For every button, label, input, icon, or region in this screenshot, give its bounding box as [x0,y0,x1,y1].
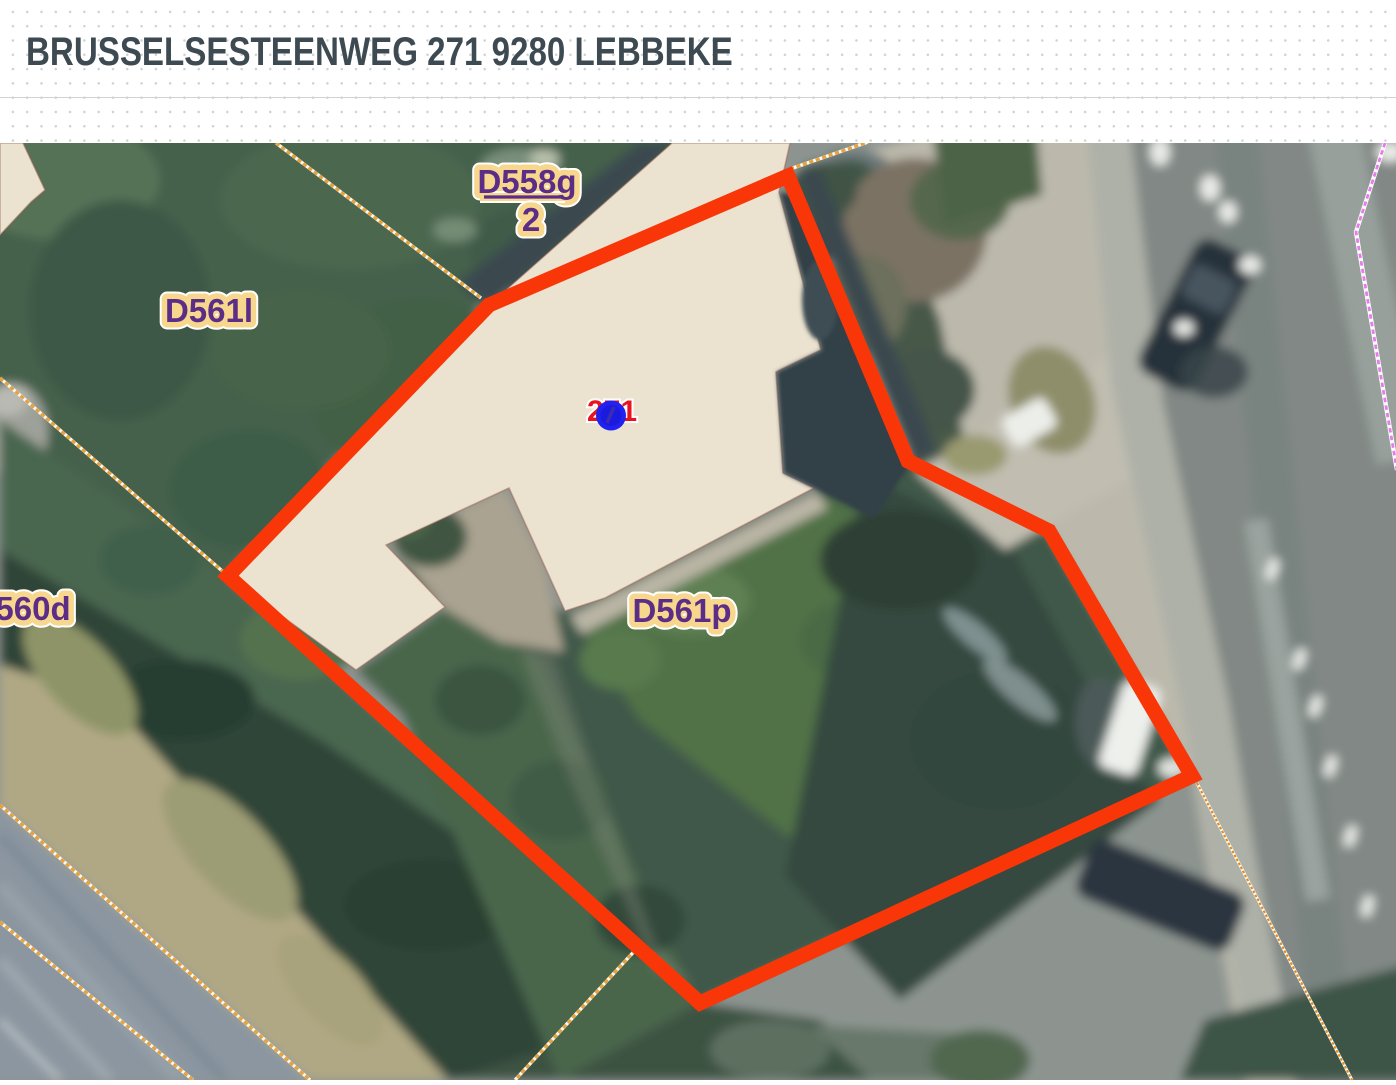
svg-text:560d: 560d [0,590,71,627]
svg-text:D558g: D558g [477,163,576,200]
svg-text:D561p: D561p [632,592,731,629]
svg-text:2: 2 [522,201,540,238]
svg-text:D561l: D561l [165,292,253,329]
